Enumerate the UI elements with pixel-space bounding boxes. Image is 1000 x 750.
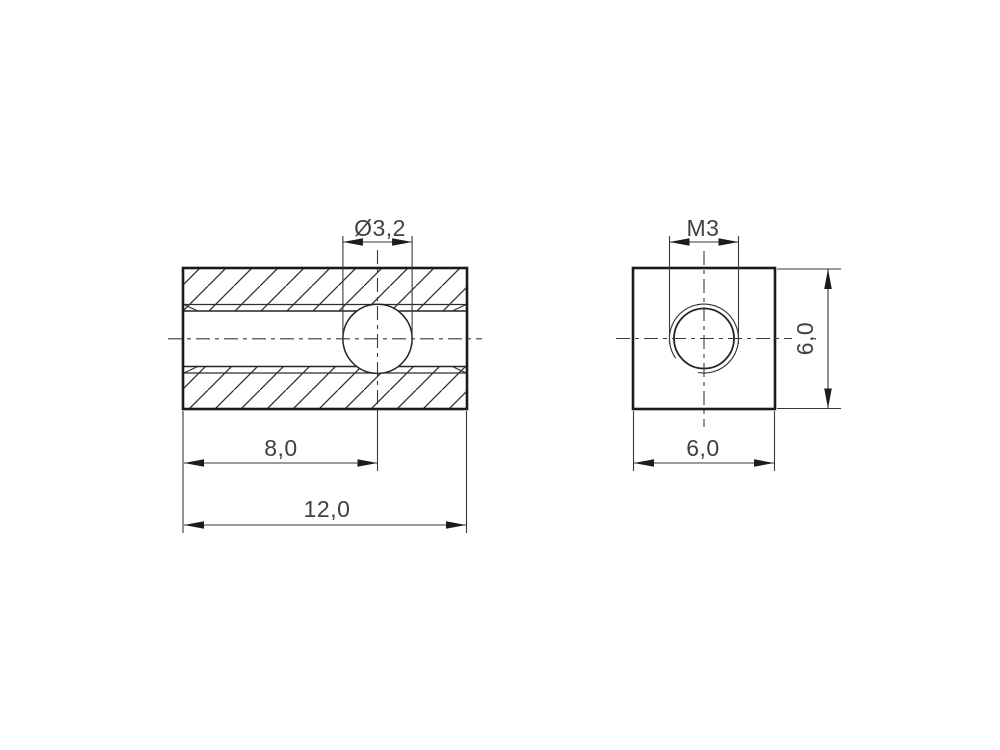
dim-arrow-left	[184, 521, 204, 529]
dim-label-overall-length: 12,0	[304, 496, 351, 522]
end-view: M3 6,0 6,0	[616, 215, 841, 471]
technical-drawing-canvas: Ø3,2 8,0 12,0	[0, 0, 1000, 750]
drawing-svg: Ø3,2 8,0 12,0	[0, 0, 1000, 750]
dim-arrow-right	[719, 238, 739, 246]
dim-arrow-left	[634, 459, 654, 467]
dim-arrow-left	[184, 459, 204, 467]
dim-arrow-right	[358, 459, 378, 467]
dim-label-hole-position: 8,0	[264, 435, 297, 461]
dim-arrow-right	[446, 521, 466, 529]
dim-arrow-right	[754, 459, 774, 467]
side-section-view: Ø3,2 8,0 12,0	[168, 215, 482, 533]
dim-label-height: 6,0	[792, 322, 818, 355]
dim-label-thread: M3	[687, 215, 720, 241]
dim-arrow-bottom	[824, 389, 832, 409]
dim-arrow-top	[824, 269, 832, 289]
dim-label-width: 6,0	[686, 435, 719, 461]
dim-label-hole-diameter: Ø3,2	[354, 215, 406, 241]
